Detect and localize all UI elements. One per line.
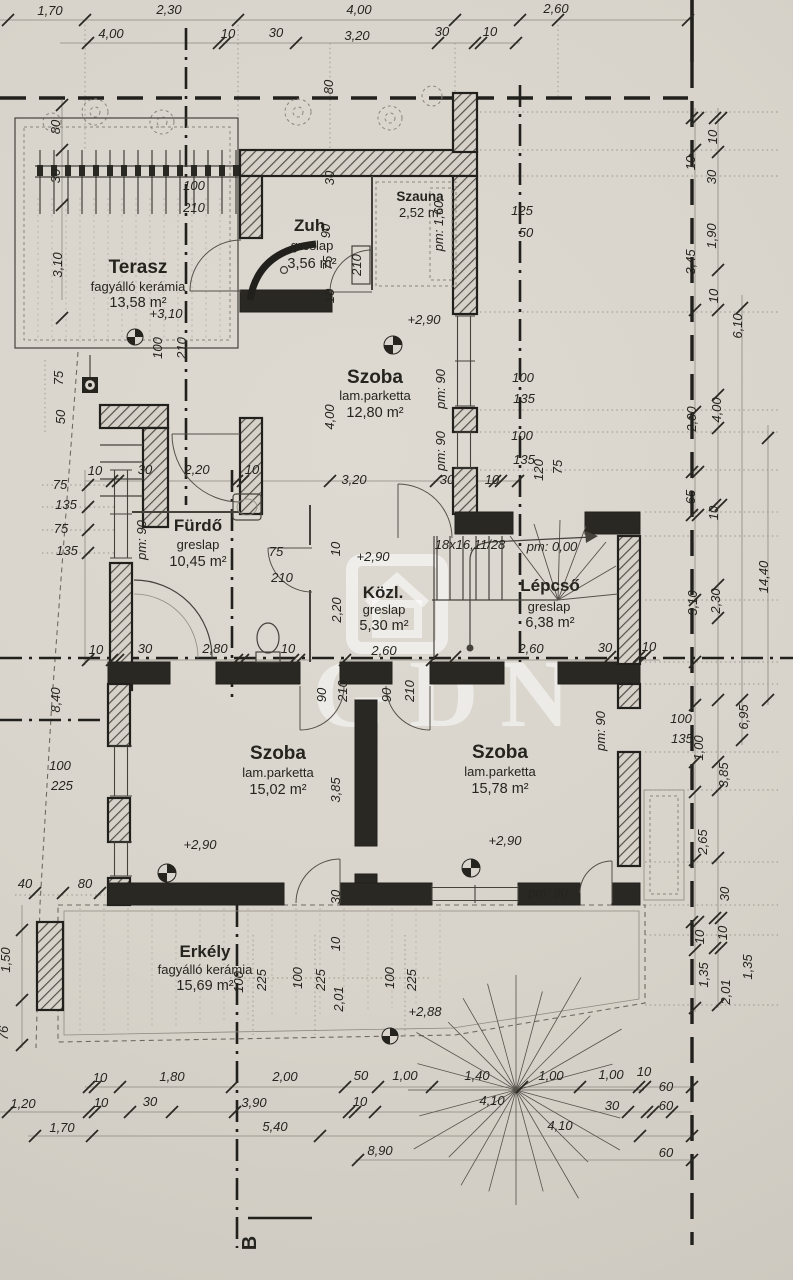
room-name: Szoba [250,743,306,764]
dimension-label: 225 [404,968,419,991]
dimension-label: 1,80 [159,1069,185,1084]
room-label-terasz: Terasz fagyálló kerámia 13,58 m² [91,257,186,311]
dimension-label: 100 [290,966,305,988]
dimension-label: 210 [182,200,205,215]
dimension-label: 60 [659,1079,674,1094]
dimension-label: 100 [183,178,205,193]
parapet-label: pm: 90 [527,885,569,900]
dimension-label: 8,40 [48,687,63,713]
balcony-area [58,905,645,1042]
room-area: 3,56 m² [287,256,336,272]
level-label: +2,90 [184,837,218,852]
dimension-label: 30 [138,462,153,477]
room-name: Fürdő [174,516,222,535]
room-finish: fagyálló kerámia [158,962,253,977]
dimension-label: 2,80 [201,641,228,656]
dimension-label: 30 [598,640,613,655]
dimension-label: 76 [0,1025,11,1040]
dimension-label: 135 [56,543,78,558]
dimension-label: 90 [314,687,329,702]
room-area: 5,30 m² [359,618,408,634]
dimension-label: 60 [659,1145,674,1160]
room-label-lepcso: Lépcső greslap 6,38 m² [520,576,580,631]
door-terrace [190,240,241,291]
room-name: Erkély [179,942,231,961]
elevation-marker [158,864,176,882]
dimension-label: 90 [379,687,394,702]
dimension-label: 225 [313,968,328,991]
room-finish: lam.parketta [242,765,314,780]
elevation-marker [462,859,480,877]
floor-plan-drawing: GDN [0,0,793,1280]
dimension-label: 210 [402,679,417,702]
dimension-label: 30 [322,170,337,185]
dimension-label: 100 [150,336,165,358]
dimension-label: 10 [281,641,296,656]
dimension-label: 2,00 [271,1069,298,1084]
parapet-label: pm: 90 [593,710,608,752]
dimension-label: 1,35 [696,962,711,988]
dimension-label: 30 [269,25,284,40]
room-name: Szoba [472,742,528,763]
room-finish: fagyálló kerámia [91,279,186,294]
dimension-label: 10 [88,463,103,478]
dimension-label: 210 [174,336,189,359]
room-label-kozl: Közl. greslap 5,30 m² [359,583,408,634]
dimension-label: 10 [93,1070,108,1085]
dimension-label: 60 [659,1098,674,1113]
dimension-label: 2,60 [517,641,544,656]
dimension-label: 80 [78,876,93,891]
dimension-label: 100 [511,428,533,443]
dimension-label: 4,00 [322,404,337,430]
level-label: +2,90 [489,833,523,848]
dimension-label: 30 [704,169,719,184]
dimension-label: 80 [321,79,336,94]
dimension-label: 4,00 [346,2,372,17]
dimension-label: 14,40 [756,560,771,593]
dimension-label: 2,30 [155,2,182,17]
dimension-label: 4,00 [709,397,724,423]
dimension-label: 225 [254,968,269,991]
dimension-label: 10 [89,642,104,657]
dimension-label: 10 [692,929,707,944]
dimension-label: 100 [512,370,534,385]
dimension-label: 75 [53,477,68,492]
dimension-label: 225 [50,778,73,793]
room-name: Szoba [347,367,403,388]
dimension-label: 1,40 [464,1068,490,1083]
dimension-label: 2,60 [542,1,569,16]
section-marker-label: B [239,1236,261,1250]
level-label: pm: 0,00 [526,539,578,554]
dimension-label: 3,10 [50,252,65,278]
elevation-marker [382,1028,398,1044]
windows-layer [110,316,518,903]
room-name: Közl. [363,583,404,602]
dimension-label: 3,85 [716,762,731,788]
room-area: 12,80 m² [346,405,403,421]
dimension-label: 30 [143,1094,158,1109]
room-label-szoba3: Szoba lam.parketta 15,78 m² [464,742,536,797]
room-name: Szauna [396,189,444,204]
dimension-label: 1,35 [740,954,755,980]
room-name: Zuh. [294,216,330,235]
room-name: Terasz [109,257,168,278]
room-label-zuh: Zuh. greslap 3,56 m² [287,216,336,272]
benchmark-symbol [82,355,98,393]
terrace-area [15,118,239,348]
room-finish: lam.parketta [339,388,411,403]
dimension-label: 30 [328,889,343,904]
dimension-label: 210 [270,570,293,585]
dimension-label: 10 [245,462,260,477]
dimension-label: 120 [531,458,546,480]
room-name: Lépcső [520,576,580,595]
dimension-label: 2,01 [718,979,733,1005]
dimension-label: 3,90 [241,1095,267,1110]
room-area: 13,58 m² [109,295,166,311]
dimension-label: 3,45 [683,249,698,275]
dimension-label: 1,00 [598,1067,624,1082]
dimension-label: 10 [637,1064,652,1079]
room-area: 6,38 m² [525,615,574,631]
dimension-label: 75 [51,370,66,385]
room-finish: lam.parketta [464,764,536,779]
dimension-label: 50 [519,225,534,240]
dimension-label: 100 [49,758,71,773]
dimension-label: 30 [605,1098,620,1113]
dimension-label: 1,70 [49,1120,75,1135]
dimension-label: 1,70 [37,3,63,18]
dimension-label: 2,00 [684,406,699,433]
dimension-label: 1,00 [538,1068,564,1083]
dimension-label: 75 [269,544,284,559]
dimension-label: 1,90 [704,223,719,249]
dimension-label: 100 [382,966,397,988]
dimension-label: 50 [53,409,68,424]
dimension-label: 3,20 [344,28,370,43]
dimension-label: 10 [328,936,343,951]
level-label: +2,90 [408,312,442,327]
dimension-label: 30 [440,472,455,487]
dimension-label: 10 [715,925,730,940]
toilet [256,623,280,662]
dimension-label: 1,20 [10,1096,36,1111]
dimension-label: 75 [54,521,69,536]
room-label-szoba1: Szoba lam.parketta 12,80 m² [339,367,411,421]
dimension-label: 30 [717,886,732,901]
dimension-label: 10 [705,129,720,144]
dimension-label: 80 [48,119,63,134]
level-label: +2,90 [357,549,391,564]
dimension-label: 10 [328,541,343,556]
dimension-label: 30 [138,641,153,656]
room-finish: greslap [363,602,406,617]
dimension-label: 3,10 [685,590,700,616]
elevation-marker [384,336,402,354]
room-finish: greslap [291,238,334,253]
room-area: 10,45 m² [169,554,226,570]
dimension-label: 1,50 [0,947,13,973]
dimension-label: 2,20 [183,462,210,477]
dimension-label: 30 [435,24,450,39]
dimension-label: 10 [322,288,337,303]
side-planter [644,790,684,900]
dimension-label: 100 [670,711,692,726]
dimension-label: 10 [706,288,721,303]
dimension-label: 6,10 [730,313,745,339]
dimension-label: 50 [354,1068,369,1083]
dimension-label: 10 [706,505,721,520]
stair-note-label: 18x16,11/28 [435,537,506,552]
room-area: 15,02 m² [249,782,306,798]
dimension-label: 2,20 [329,597,344,624]
room-label-szoba2: Szoba lam.parketta 15,02 m² [242,743,314,798]
watermark-text: GDN [312,640,591,747]
dimension-label: 4,10 [479,1093,505,1108]
dimension-label: 10 [485,472,500,487]
dimension-label: 10 [642,639,657,654]
dimension-label: 2,01 [331,986,346,1012]
dimension-label: 4,10 [547,1118,573,1133]
parapet-label: pm: 90 [433,368,448,410]
dimension-label: 2,60 [370,643,397,658]
dimension-label: 2,65 [695,829,710,856]
room-area: 2,52 m² [399,205,444,220]
dimension-label: 10 [683,155,698,170]
room-area: 15,69 m² [176,978,233,994]
dimension-label: 8,90 [367,1143,393,1158]
dimension-label: 210 [349,253,364,276]
room-label-szauna: Szauna 2,52 m² [396,189,444,220]
room-finish: greslap [528,599,571,614]
room-area: 15,78 m² [471,781,528,797]
parapet-label: pm: 90 [134,519,149,561]
dimension-label: 1,00 [392,1068,418,1083]
elevation-marker [127,329,143,345]
dimension-label: 40 [18,876,33,891]
dimension-label: 2,30 [708,588,723,615]
room-finish: greslap [177,537,220,552]
dimension-label: 4,00 [98,26,124,41]
dimension-label: 135 [55,497,77,512]
level-label: +2,88 [409,1004,443,1019]
dimension-label: 125 [511,203,533,218]
dimension-label: 10 [353,1094,368,1109]
room-label-furdo: Fürdő greslap 10,45 m² [169,516,226,570]
dimension-label: 1,00 [691,735,706,761]
dimension-label: 10 [94,1095,109,1110]
dimension-label: 135 [513,391,535,406]
dimension-label: 65 [683,489,698,504]
dimension-label: 3,85 [328,777,343,803]
floor-plan-page: GDN [0,0,793,1280]
dimension-label: 5,40 [262,1119,288,1134]
dimension-label: 10 [221,26,236,41]
door-balcony-right [580,861,612,903]
dimension-label: 3,20 [341,472,367,487]
dimension-label: 6,95 [736,704,751,730]
dimension-label: 10 [483,24,498,39]
parapet-label: pm: 90 [433,430,448,472]
dimension-label: 75 [550,459,565,474]
door-room1 [398,484,452,538]
dimension-label: 210 [335,679,350,702]
dimension-label: 30 [48,168,63,183]
